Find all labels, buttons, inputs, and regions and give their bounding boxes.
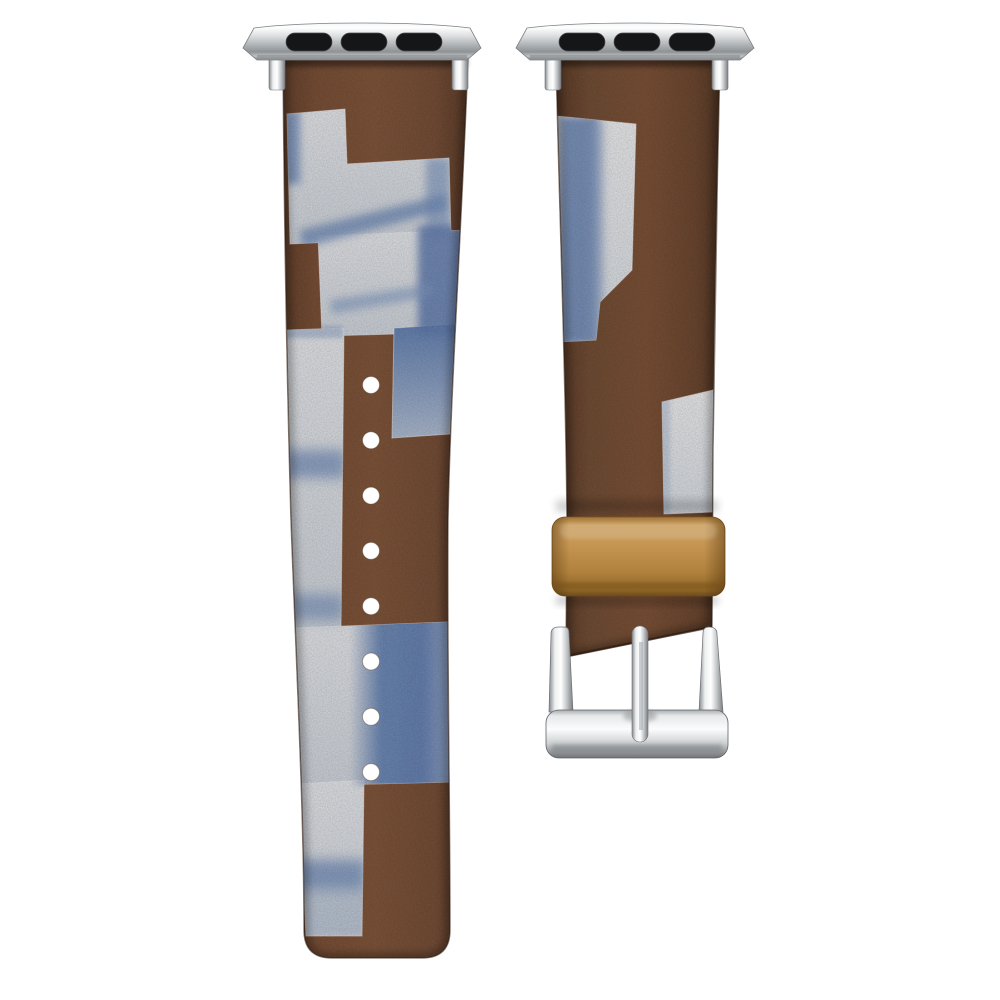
adapter-slot: [559, 33, 605, 51]
strap-hole: [363, 764, 380, 781]
adapter-slot: [669, 33, 715, 51]
strap-hole: [363, 542, 380, 559]
left-strap: [255, 50, 485, 965]
fabric-grain: [255, 50, 485, 965]
strap-hole: [363, 377, 380, 394]
right-strap: [540, 50, 735, 758]
adapter-post: [269, 58, 285, 90]
strap-hole: [363, 487, 380, 504]
prong-shading: [639, 642, 643, 730]
product-photo-stage: [0, 0, 1000, 1000]
adapter-slot: [614, 33, 660, 51]
adapter-post: [452, 58, 468, 90]
buckle-right-arm: [699, 627, 723, 712]
strap-hole: [363, 598, 380, 615]
buckle-left-arm: [549, 627, 573, 712]
adapter-post: [712, 58, 728, 90]
strap-hole: [363, 432, 380, 449]
adapter-slot: [341, 33, 387, 51]
adapter-post: [545, 58, 561, 90]
adapter-slot: [396, 33, 442, 51]
adapter-slot: [286, 33, 332, 51]
watch-band-photo: [0, 0, 1000, 1000]
strap-hole: [363, 653, 380, 670]
strap-hole: [363, 708, 380, 725]
